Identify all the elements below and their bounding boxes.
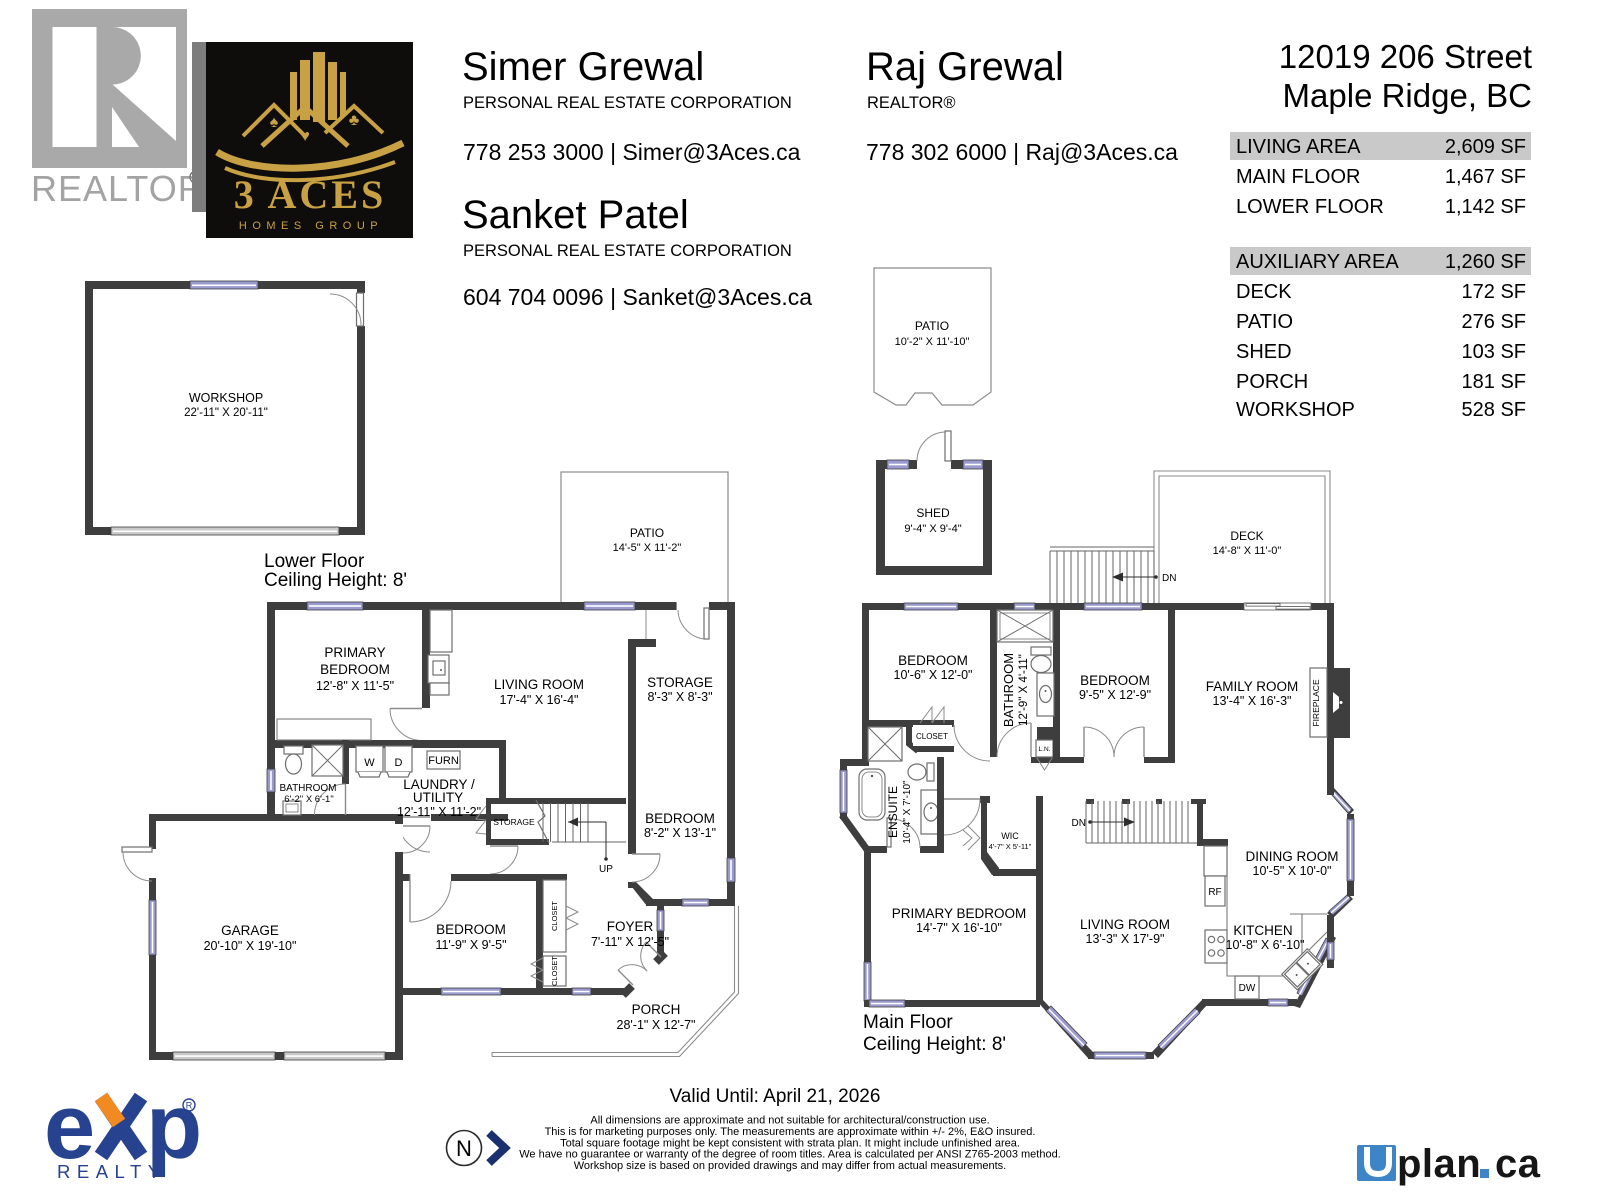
svg-text:♠: ♠ — [270, 114, 279, 131]
svg-text:11'-9" X 9'-5": 11'-9" X 9'-5" — [435, 938, 506, 952]
svg-text:REALTY: REALTY — [57, 1161, 167, 1182]
svg-text:3 ACES: 3 ACES — [234, 172, 387, 217]
svg-text:BEDROOM: BEDROOM — [645, 811, 715, 826]
svg-text:STORAGE: STORAGE — [493, 817, 535, 827]
svg-text:UTILITY: UTILITY — [413, 790, 463, 805]
svg-text:778 302 6000 | Raj@3Aces.ca: 778 302 6000 | Raj@3Aces.ca — [866, 139, 1178, 165]
svg-text:All dimensions are approximate: All dimensions are approximate and not s… — [590, 1115, 989, 1127]
svg-text:This is for marketing purposes: This is for marketing purposes only. The… — [545, 1126, 1036, 1138]
svg-text:plan: plan — [1397, 1142, 1481, 1186]
svg-text:BEDROOM: BEDROOM — [898, 653, 968, 668]
svg-text:778 253 3000 | Simer@3Aces.ca: 778 253 3000 | Simer@3Aces.ca — [463, 139, 801, 165]
svg-text:10'-6" X 12'-0": 10'-6" X 12'-0" — [894, 668, 973, 682]
svg-text:1,260 SF: 1,260 SF — [1445, 251, 1526, 273]
svg-text:6'-2" X 6'-1": 6'-2" X 6'-1" — [284, 794, 333, 805]
svg-text:DW: DW — [1239, 983, 1256, 994]
svg-text:W: W — [364, 757, 375, 769]
svg-text:PORCH: PORCH — [1236, 371, 1308, 393]
svg-text:WORKSHOP: WORKSHOP — [1236, 399, 1355, 421]
svg-text:20'-10" X 19'-10": 20'-10" X 19'-10" — [204, 939, 297, 953]
svg-text:HOMES GROUP: HOMES GROUP — [239, 220, 383, 232]
svg-text:Sanket Patel: Sanket Patel — [462, 193, 689, 237]
svg-text:DN: DN — [1162, 573, 1176, 584]
svg-text:12'-9" X 4'-11": 12'-9" X 4'-11" — [1018, 654, 1030, 726]
svg-text:181 SF: 181 SF — [1462, 371, 1526, 393]
svg-text:DECK: DECK — [1236, 281, 1292, 303]
svg-text:LIVING ROOM: LIVING ROOM — [494, 677, 584, 692]
svg-text:PATIO: PATIO — [1236, 311, 1293, 333]
svg-text:9'-4" X 9'-4": 9'-4" X 9'-4" — [904, 523, 961, 535]
svg-text:Simer Grewal: Simer Grewal — [462, 45, 704, 89]
svg-text:BATHROOM: BATHROOM — [279, 783, 336, 794]
svg-text:Ceiling Height: 8': Ceiling Height: 8' — [264, 570, 407, 591]
svg-text:PERSONAL REAL ESTATE CORPORATI: PERSONAL REAL ESTATE CORPORATION — [463, 242, 792, 260]
svg-text:CLOSET: CLOSET — [550, 901, 559, 931]
svg-text:PORCH: PORCH — [632, 1002, 681, 1017]
svg-text:BATHROOM: BATHROOM — [1001, 653, 1016, 727]
svg-text:14'-7" X 16'-10": 14'-7" X 16'-10" — [916, 921, 1002, 935]
svg-text:Valid Until: April 21, 2026: Valid Until: April 21, 2026 — [670, 1086, 881, 1107]
svg-text:LIVING AREA: LIVING AREA — [1236, 136, 1361, 158]
svg-text:BEDROOM: BEDROOM — [1080, 673, 1150, 688]
svg-text:12'-11" X 11'-2": 12'-11" X 11'-2" — [397, 805, 481, 819]
svg-text:Main Floor: Main Floor — [863, 1012, 953, 1033]
svg-text:REALTOR®: REALTOR® — [867, 94, 956, 112]
svg-text:DN: DN — [1072, 818, 1086, 829]
svg-text:BEDROOM: BEDROOM — [320, 662, 390, 677]
svg-text:1,467 SF: 1,467 SF — [1445, 166, 1526, 188]
svg-text:276 SF: 276 SF — [1462, 311, 1526, 333]
svg-text:FOYER: FOYER — [607, 919, 654, 934]
svg-text:SHED: SHED — [1236, 341, 1292, 363]
svg-text:PATIO: PATIO — [915, 319, 949, 333]
svg-text:172 SF: 172 SF — [1462, 281, 1526, 303]
svg-text:DECK: DECK — [1230, 529, 1263, 543]
svg-text:LIVING ROOM: LIVING ROOM — [1080, 917, 1170, 932]
svg-text:REALTOR: REALTOR — [31, 168, 205, 209]
svg-text:10'-8" X 6'-10": 10'-8" X 6'-10" — [1226, 938, 1305, 952]
svg-text:FIREPLACE: FIREPLACE — [1311, 679, 1321, 727]
svg-text:13'-3" X 17'-9": 13'-3" X 17'-9" — [1086, 932, 1165, 946]
svg-text:WORKSHOP: WORKSHOP — [189, 391, 263, 405]
svg-text:AUXILIARY AREA: AUXILIARY AREA — [1236, 251, 1399, 273]
svg-text:8'-3" X 8'-3": 8'-3" X 8'-3" — [647, 690, 712, 704]
svg-text:L.N.: L.N. — [1039, 746, 1051, 753]
svg-text:2,609 SF: 2,609 SF — [1445, 136, 1526, 158]
svg-text:9'-5" X 12'-9": 9'-5" X 12'-9" — [1079, 688, 1151, 702]
svg-text:CLOSET: CLOSET — [916, 732, 948, 741]
svg-text:103 SF: 103 SF — [1462, 341, 1526, 363]
svg-text:14'-5" X 11'-2": 14'-5" X 11'-2" — [613, 542, 682, 554]
svg-text:♣: ♣ — [349, 112, 360, 129]
svg-text:ca: ca — [1495, 1142, 1541, 1186]
svg-text:4'-7" X 5'-11": 4'-7" X 5'-11" — [989, 842, 1032, 851]
svg-text:Workshop size is based on prov: Workshop size is based on provided drawi… — [574, 1160, 1006, 1172]
svg-text:FAMILY ROOM: FAMILY ROOM — [1206, 679, 1299, 694]
svg-text:Maple Ridge, BC: Maple Ridge, BC — [1283, 77, 1532, 114]
svg-text:MAIN FLOOR: MAIN FLOOR — [1236, 166, 1360, 188]
svg-text:BEDROOM: BEDROOM — [436, 922, 506, 937]
svg-text:SHED: SHED — [916, 506, 950, 520]
svg-text:CLOSET: CLOSET — [550, 956, 559, 986]
svg-text:1,142 SF: 1,142 SF — [1445, 196, 1526, 218]
svg-text:22'-11" X 20'-11": 22'-11" X 20'-11" — [184, 407, 268, 419]
svg-text:Ceiling Height: 8': Ceiling Height: 8' — [863, 1034, 1006, 1055]
svg-text:PRIMARY: PRIMARY — [324, 645, 385, 660]
svg-text:10'-4" X 7'-10": 10'-4" X 7'-10" — [902, 780, 913, 844]
svg-text:UP: UP — [599, 864, 613, 875]
svg-text:Total square footage might be: Total square footage might be kept consi… — [560, 1137, 1020, 1149]
svg-text:10'-5" X 10'-0": 10'-5" X 10'-0" — [1253, 864, 1332, 878]
svg-text:604 704 0096 | Sanket@3Aces.ca: 604 704 0096 | Sanket@3Aces.ca — [463, 284, 812, 310]
svg-text:FURN: FURN — [428, 755, 459, 767]
svg-text:STORAGE: STORAGE — [647, 675, 713, 690]
svg-text:♥: ♥ — [300, 128, 310, 145]
svg-text:LOWER FLOOR: LOWER FLOOR — [1236, 196, 1384, 218]
svg-text:PRIMARY BEDROOM: PRIMARY BEDROOM — [892, 906, 1027, 921]
svg-text:8'-2" X 13'-1": 8'-2" X 13'-1" — [644, 826, 716, 840]
svg-text:Raj Grewal: Raj Grewal — [866, 45, 1064, 89]
svg-text:Lower Floor: Lower Floor — [264, 551, 365, 572]
svg-text:PERSONAL REAL ESTATE CORPORATI: PERSONAL REAL ESTATE CORPORATION — [463, 94, 792, 112]
svg-text:PATIO: PATIO — [630, 526, 664, 540]
svg-text:WIC: WIC — [1001, 831, 1019, 841]
svg-text:12'-8" X 11'-5": 12'-8" X 11'-5" — [316, 679, 394, 693]
svg-text:28'-1" X 12'-7": 28'-1" X 12'-7" — [617, 1018, 696, 1032]
svg-text:DINING ROOM: DINING ROOM — [1246, 849, 1339, 864]
svg-text:10'-2" X 11'-10": 10'-2" X 11'-10" — [895, 336, 970, 348]
svg-text:D: D — [395, 757, 403, 769]
svg-text:KITCHEN: KITCHEN — [1233, 923, 1292, 938]
svg-text:GARAGE: GARAGE — [221, 923, 279, 938]
svg-text:We have no guarantee or warran: We have no guarantee or warranty of the … — [519, 1149, 1061, 1161]
svg-text:12019 206 Street: 12019 206 Street — [1279, 38, 1532, 75]
svg-text:14'-8" X 11'-0": 14'-8" X 11'-0" — [1213, 545, 1282, 557]
svg-text:RF: RF — [1208, 887, 1221, 898]
svg-text:17'-4" X 16'-4": 17'-4" X 16'-4" — [500, 693, 579, 707]
svg-text:N: N — [456, 1136, 472, 1161]
svg-text:528 SF: 528 SF — [1462, 399, 1526, 421]
svg-text:7'-11" X 12'-5": 7'-11" X 12'-5" — [591, 935, 669, 949]
svg-text:R: R — [186, 1101, 193, 1111]
svg-text:ENSUITE: ENSUITE — [886, 786, 900, 838]
svg-text:13'-4" X 16'-3": 13'-4" X 16'-3" — [1213, 694, 1292, 708]
